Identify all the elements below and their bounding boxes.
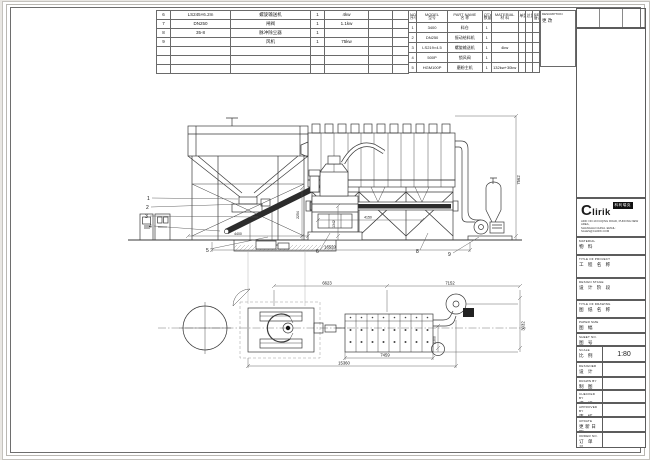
- dim-2300: 2300: [433, 336, 437, 344]
- table-row-empty: [157, 65, 409, 74]
- parts-table-left: 6 LS245×6.2m 螺旋输送机 1 4kw 7 DN250 闸阀 1 1.…: [156, 10, 409, 74]
- callout-6: 6: [316, 249, 319, 255]
- cell-power: 75kw: [325, 38, 369, 47]
- dim-3032: 3032: [521, 321, 526, 331]
- drawing-title-box: TITLE OF DRAWING 图 纸 名 称: [576, 300, 646, 318]
- header-material: MATERIAL材 料: [491, 11, 518, 23]
- checked-by-box: CHECKED BY 校 核: [576, 390, 646, 403]
- designer-box: DESIGNER 设 计: [576, 362, 646, 377]
- callout-8: 8: [416, 249, 419, 255]
- header-remark: REMARK备注: [532, 11, 539, 23]
- cell-model: DN250: [171, 20, 231, 29]
- callout-2: 2: [146, 205, 149, 211]
- cell-no: 8: [157, 29, 171, 38]
- table-row: 4 500P 锁风阀 1: [409, 53, 540, 63]
- revision-strip: [576, 8, 646, 28]
- clirik-logo-cn: 科利瑞克: [613, 202, 633, 209]
- dim-4150: 4150: [364, 216, 372, 220]
- header-qty: QTY数量: [482, 11, 491, 23]
- dim-2254: 2254: [296, 211, 300, 219]
- cell-power: 1.1kw: [325, 20, 369, 29]
- table-row: 8 35-8 脉冲除尘器 1: [157, 29, 409, 38]
- header-part-name: PART NAME名 称: [447, 11, 482, 23]
- drawn-by-box: DRAWN BY 制 图: [576, 377, 646, 390]
- scale-value: 1:80: [603, 347, 645, 361]
- order-no-box: ORDER NO. 订 单 号: [576, 432, 646, 448]
- scale-box: SCALE 比 例 1:80: [576, 346, 646, 362]
- cell-model: 35-8: [171, 29, 231, 38]
- table-row: 6 LS245×6.2m 螺旋输送机 1 4kw: [157, 11, 409, 20]
- table-row: 9 风机 1 75kw: [157, 38, 409, 47]
- dim-7152: 7152: [445, 280, 455, 285]
- elevation-view: [128, 118, 522, 251]
- company-logo-box: Clirik 科利瑞克 ADD: NO.19 FUQING ROAD, PUDO…: [576, 198, 646, 237]
- table-row: 2 DN250 振动给料机 1: [409, 33, 540, 43]
- cell-model: LS245×6.2m: [171, 11, 231, 20]
- cell-no: 6: [157, 11, 171, 20]
- cell-no: 7: [157, 20, 171, 29]
- callout-3: 3: [145, 214, 148, 220]
- collector-plan: [345, 314, 433, 352]
- cell-name: 脉冲除尘器: [231, 29, 311, 38]
- description-sub-label: 更 改: [542, 18, 574, 24]
- table-header-row: NO.序号 MODEL型号 PART NAME名 称 QTY数量 MATERIA…: [409, 11, 540, 23]
- header-model: MODEL型号: [417, 11, 448, 23]
- material-box: MATERIAL 物 料: [576, 237, 646, 255]
- header-unit-weight: 单重: [518, 11, 525, 23]
- header-total-weight: 总重: [525, 11, 532, 23]
- table-row-empty: [157, 47, 409, 56]
- cell-power: [325, 29, 369, 38]
- dim-6623: 6623: [322, 280, 332, 285]
- drawing-sheet-page: { "tables": { "left": { "rows": [ {"no":…: [0, 0, 650, 460]
- table-row: 7 DN250 闸阀 1 1.1kw: [157, 20, 409, 29]
- cell-no: 9: [157, 38, 171, 47]
- dim-7562: 7562: [516, 175, 521, 185]
- sheet-no-box: SHEET NO. 图 号: [576, 333, 646, 346]
- dim-1342: 1342: [332, 220, 336, 228]
- hopper-plan: [179, 302, 231, 354]
- design-stage-box: DESIGN STAGE 设 计 阶 段: [576, 278, 646, 300]
- description-box: DESCRIPTION 更 改: [540, 10, 576, 67]
- clirik-logo: Clirik: [581, 202, 611, 219]
- dim-4400: 4400: [234, 232, 242, 236]
- callout-4: 4: [149, 224, 152, 230]
- mill-plan: [233, 289, 345, 358]
- classifier-outlet-pipe: [343, 145, 384, 163]
- silencer-vessel: [486, 178, 501, 228]
- table-row-empty: [157, 56, 409, 65]
- plan-view: [158, 252, 526, 358]
- callout-1: 1: [147, 196, 150, 202]
- blank-panel: [576, 28, 646, 198]
- dim-7459: 7459: [380, 353, 390, 358]
- callout-5: 5: [206, 248, 209, 254]
- cell-model: [171, 38, 231, 47]
- approved-by-box: APPROVED BY 审 核: [576, 403, 646, 417]
- technical-drawing: 7562 16520 4400 1342 2254 4150 6623 7152…: [122, 100, 572, 400]
- cell-power: 4kw: [325, 11, 369, 20]
- project-title-box: TITLE OF PROJECT 工 程 名 称: [576, 255, 646, 278]
- cell-qty: 1: [311, 20, 325, 29]
- table-row: 3 LS219×4.5 螺旋输送机 1 4kw: [409, 43, 540, 53]
- outlet-duct: [455, 141, 481, 222]
- cell-name: 螺旋输送机: [231, 11, 311, 20]
- cell-qty: 1: [311, 29, 325, 38]
- paper-size-box: PAPER SIZE 图 幅: [576, 318, 646, 333]
- dim-15360: 15360: [338, 361, 350, 366]
- foundation-pit: [234, 240, 336, 251]
- description-label: DESCRIPTION: [542, 12, 574, 16]
- header-no: NO.序号: [409, 11, 417, 23]
- company-address-line2: SHANGHAI CHINA. EMAIL: SALES@CLIRIK.COM: [581, 227, 643, 234]
- dim-16520: 16520: [324, 245, 336, 250]
- cell-qty: 1: [311, 38, 325, 47]
- table-row: 1 3400 料仓 1: [409, 23, 540, 33]
- blower-fan: [468, 220, 512, 240]
- callout-9: 9: [448, 252, 451, 258]
- cell-name: 风机: [231, 38, 311, 47]
- parts-table-main: NO.序号 MODEL型号 PART NAME名 称 QTY数量 MATERIA…: [408, 10, 540, 73]
- update-box: UPDATE 更新日期: [576, 417, 646, 432]
- cell-qty: 1: [311, 11, 325, 20]
- table-row: 5 HGM100P 磨粉主机 1 132kw+30kw: [409, 63, 540, 73]
- cell-name: 闸阀: [231, 20, 311, 29]
